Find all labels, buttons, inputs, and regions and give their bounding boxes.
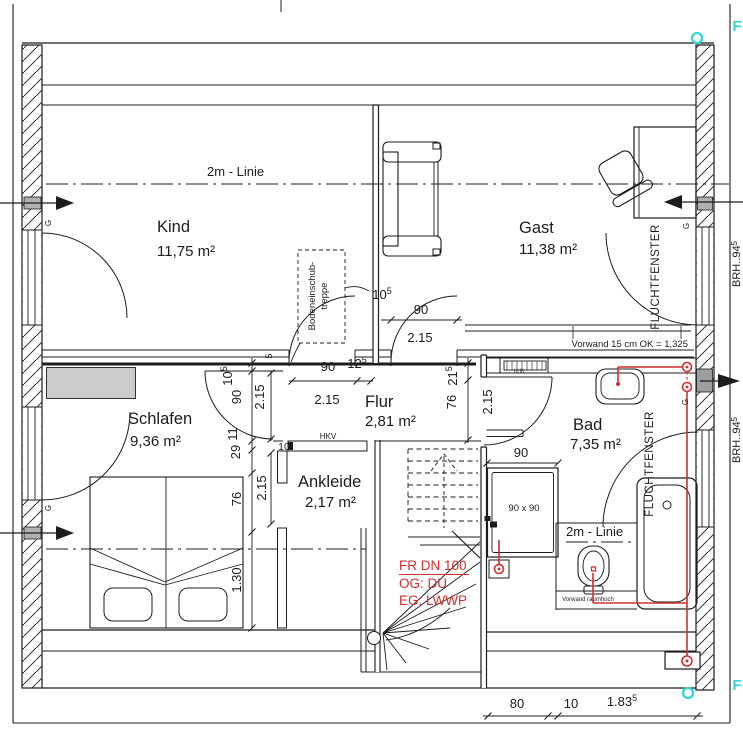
- dim-gast-door-offset: 105: [372, 286, 391, 302]
- label-shower-size: 90 x 90: [508, 503, 539, 514]
- dim-gast-door-height: 2.15: [407, 330, 432, 345]
- survey-point-icon: [683, 688, 693, 698]
- room-name-bad: Bad: [573, 416, 602, 434]
- label-brh-right-2: BRH..945: [730, 416, 743, 463]
- sofa: [383, 142, 441, 256]
- section-arrow-icon: [56, 526, 74, 540]
- label-2m-linie-top: 2m - Linie: [207, 164, 264, 179]
- washbasin: [596, 369, 644, 404]
- bathroom-fixtures: [485, 361, 698, 609]
- right-gable-wall: [696, 45, 714, 690]
- section-arrow-icon: [664, 195, 682, 209]
- dim-mid-chain-b: 76: [444, 395, 459, 409]
- dim-bottom-b: 10: [564, 696, 578, 711]
- label-eg-lwwp: EG: LWWP: [399, 593, 467, 608]
- label-2m-linie-bad: 2m - Linie: [566, 524, 623, 539]
- dim-pier-width: 10: [278, 441, 290, 453]
- label-window-handle: G: [44, 220, 53, 226]
- dim-kind-door-jamb: 125: [347, 355, 366, 371]
- dim-left-chain-f: 1.30: [229, 567, 244, 592]
- label-og-du: OG: DU: [399, 576, 447, 591]
- label-brh-left-1: BRH..94: [0, 241, 3, 283]
- furniture-schlafen: [47, 368, 244, 629]
- section-marker-right-top: [698, 197, 713, 210]
- dim-bad-door-height: 2.15: [480, 389, 495, 414]
- dim-mid-chain-a: 215: [444, 366, 460, 385]
- dim-bottom-c: 1.835: [607, 693, 637, 709]
- dim-left-chain-a: 105: [219, 366, 235, 385]
- section-arrow-icon: [56, 196, 74, 210]
- label-brh-left-2: BRH..94: [0, 431, 3, 473]
- label-vorwand-raumhoch: Vorwand raumhoch: [562, 597, 614, 603]
- left-gable-wall: [22, 45, 42, 688]
- room-area-schlafen: 9,36 m²: [130, 433, 181, 450]
- dim-ankleide-opening-height: 2.15: [254, 475, 269, 500]
- dresser: [47, 368, 136, 399]
- dim-kind-door-width: 90: [321, 359, 335, 374]
- room-area-gast: 11,38 m²: [519, 241, 577, 258]
- room-area-ankleide: 2,17 m²: [305, 494, 356, 511]
- hhk-radiator: [504, 361, 546, 370]
- wall-hkv: [288, 441, 367, 451]
- section-arrow-icon: [718, 374, 740, 388]
- window-swing-arc: [42, 412, 130, 500]
- room-name-kind: Kind: [157, 218, 190, 236]
- dim-left-chain-c: 11: [225, 427, 240, 441]
- loft-ladder: [291, 250, 369, 362]
- stair-direction-arrow: [431, 454, 457, 528]
- room-area-kind: 11,75 m²: [157, 243, 215, 260]
- window-schlafen: [22, 407, 130, 500]
- chair: [593, 146, 654, 208]
- floorplan-page: Kind 11,75 m² Gast 11,38 m² Schlafen 9,3…: [0, 0, 743, 737]
- dim-gast-door-width: 90: [414, 302, 428, 317]
- desk: [634, 127, 696, 218]
- label-brh-right-1: BRH..945: [730, 240, 743, 287]
- pillow: [104, 588, 152, 621]
- dim-left-chain-e: 76: [229, 492, 244, 506]
- survey-point-icon: [692, 33, 702, 43]
- wall-shower-stub: [487, 430, 524, 437]
- dim-tick-5: 5: [264, 353, 274, 358]
- dim-kind-door-height: 2.15: [314, 392, 339, 407]
- newel-post: [368, 632, 381, 645]
- label-window-handle: G: [682, 223, 691, 229]
- dim-schlafen-door-height: 2.15: [252, 384, 267, 409]
- label-vorwand-ok: Vorwand 15 cm OK = 1,325: [572, 339, 688, 350]
- label-f-top: F: [732, 18, 741, 35]
- label-fluchtfenster-bad: FLUCHTFENSTER: [644, 411, 656, 517]
- label-fr-dn100: FR DN 100: [399, 558, 467, 573]
- dim-left-chain-b: 90: [229, 390, 244, 404]
- label-f-bottom: F: [732, 677, 741, 694]
- label-bodeneinschubtreppe-1: Bodeneinschub-: [307, 262, 318, 331]
- label-hhk: HHK: [514, 369, 525, 375]
- label-window-handle: G: [681, 399, 690, 405]
- room-name-schlafen: Schlafen: [128, 410, 192, 428]
- label-hkv: HKV: [320, 432, 337, 441]
- window-swing-arc: [42, 233, 127, 318]
- floorplan-canvas: Kind 11,75 m² Gast 11,38 m² Schlafen 9,3…: [0, 0, 743, 737]
- wall-stub: [361, 528, 366, 672]
- room-area-flur: 2,81 m²: [365, 413, 416, 430]
- wall-ankleide: [278, 528, 287, 628]
- room-name-gast: Gast: [519, 219, 554, 237]
- window-kind: [22, 230, 127, 325]
- wall-pier: [278, 451, 288, 483]
- dim-shower-width: 90: [514, 445, 528, 460]
- pillow: [179, 588, 227, 621]
- label-bodeneinschubtreppe-2: treppe: [319, 283, 330, 310]
- label-window-handle: G: [44, 505, 53, 511]
- room-name-ankleide: Ankleide: [298, 473, 361, 491]
- dim-left-chain-d: 29: [228, 445, 243, 459]
- room-area-bad: 7,35 m²: [570, 436, 621, 453]
- room-name-flur: Flur: [365, 393, 394, 411]
- label-fluchtfenster-gast: FLUCHTFENSTER: [650, 224, 662, 330]
- bed: [90, 477, 243, 628]
- dim-bottom-a: 80: [510, 696, 524, 711]
